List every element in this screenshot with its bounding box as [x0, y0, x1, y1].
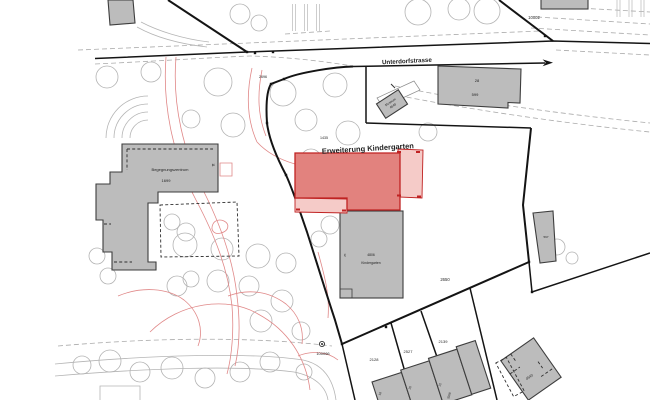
museum-parcel-south — [366, 123, 531, 128]
begegnungszentrum-house-number: 11 — [211, 163, 215, 167]
tree — [292, 322, 310, 340]
tree — [99, 350, 121, 372]
planned-strip-southwest — [295, 198, 347, 213]
survey-point-marker — [319, 341, 324, 346]
red-blob — [212, 220, 228, 233]
parcel-label-10002: 10002 — [528, 15, 540, 20]
corner-structure — [100, 386, 140, 400]
parking-stalls — [617, 0, 644, 17]
kindergarten-name-label: Kindergarten — [361, 261, 381, 265]
amphitheatre-arcs — [106, 96, 148, 138]
red-path — [165, 57, 232, 374]
museum-tick — [391, 84, 395, 88]
tree — [204, 68, 232, 96]
house-number-28: 28 — [475, 78, 480, 83]
parcel-label-599: 599 — [472, 92, 479, 97]
building-top-right — [541, 0, 588, 9]
street-line-north — [95, 41, 650, 59]
parcel-label-2650: 2650 — [440, 277, 450, 282]
road-edge-dashed — [95, 56, 358, 67]
red-annex-outline — [220, 163, 232, 176]
tree — [177, 223, 195, 241]
kindergarten-house-number: 12 — [343, 253, 347, 257]
row-houses — [370, 341, 491, 400]
tree — [405, 0, 431, 25]
tree — [173, 233, 197, 257]
planned-buildings — [295, 149, 423, 213]
planned-wing-east — [398, 149, 423, 198]
begegnungszentrum-parcel-label: 1699 — [162, 178, 172, 183]
boundary-east — [523, 128, 531, 262]
kindergarten-parcel-label: 4806 — [367, 253, 375, 257]
tree — [141, 62, 161, 82]
road-edge-dashed — [556, 50, 650, 55]
red-path — [118, 290, 200, 346]
parking-stalls — [285, 4, 330, 34]
tree — [321, 216, 339, 234]
tree — [183, 271, 199, 287]
tree — [323, 73, 347, 97]
road-bottom — [55, 355, 336, 400]
red-path — [259, 70, 266, 136]
red-path — [150, 304, 310, 390]
driveway-dashed — [395, 86, 650, 123]
tree — [130, 362, 150, 382]
road-bottom — [55, 368, 328, 400]
parcel-separator — [342, 344, 355, 400]
parcel-label-1435: 1435 — [320, 136, 328, 140]
tree — [221, 113, 245, 137]
building-597-label: 597 — [543, 235, 548, 239]
tree — [260, 352, 280, 372]
tree — [251, 15, 267, 31]
building-28 — [438, 66, 521, 108]
site-plan-map: Unterdorfstrasse Erweiterung Kindergarte… — [0, 0, 650, 400]
road-edge-dashed — [531, 28, 650, 35]
red-path — [175, 57, 239, 366]
driveway-line — [137, 27, 207, 47]
tree — [73, 356, 91, 374]
tree — [566, 252, 578, 264]
tree — [295, 109, 317, 131]
tree — [164, 214, 180, 230]
road-edge-dashed — [537, 17, 650, 24]
road-edge-dashed — [78, 31, 540, 50]
parcel-label-2696: 2696 — [259, 75, 267, 79]
begegnungszentrum-name-label: Begegnungszentrum — [152, 167, 190, 172]
site-plan-svg: Unterdorfstrasse Erweiterung Kindergarte… — [0, 0, 650, 400]
tree — [311, 231, 327, 247]
survey-point-label: 100066 — [316, 351, 330, 356]
tree — [161, 357, 183, 379]
tree — [276, 253, 296, 273]
parcel-label-2139: 2139 — [439, 339, 449, 344]
driveway-line — [141, 22, 209, 42]
tree — [336, 121, 360, 145]
parcel-label-2128: 2128 — [370, 357, 380, 362]
parcel-label-2527: 2527 — [404, 349, 414, 354]
building-top-left — [108, 0, 135, 25]
tree — [182, 110, 200, 128]
tree — [230, 362, 250, 382]
tree — [96, 66, 118, 88]
boundary-diagonal-left — [168, 0, 247, 52]
tree — [246, 244, 270, 268]
tree — [239, 276, 259, 296]
tree — [448, 0, 470, 20]
tree — [230, 4, 250, 24]
tree — [195, 368, 215, 388]
tree — [474, 0, 500, 24]
red-path — [248, 68, 257, 142]
